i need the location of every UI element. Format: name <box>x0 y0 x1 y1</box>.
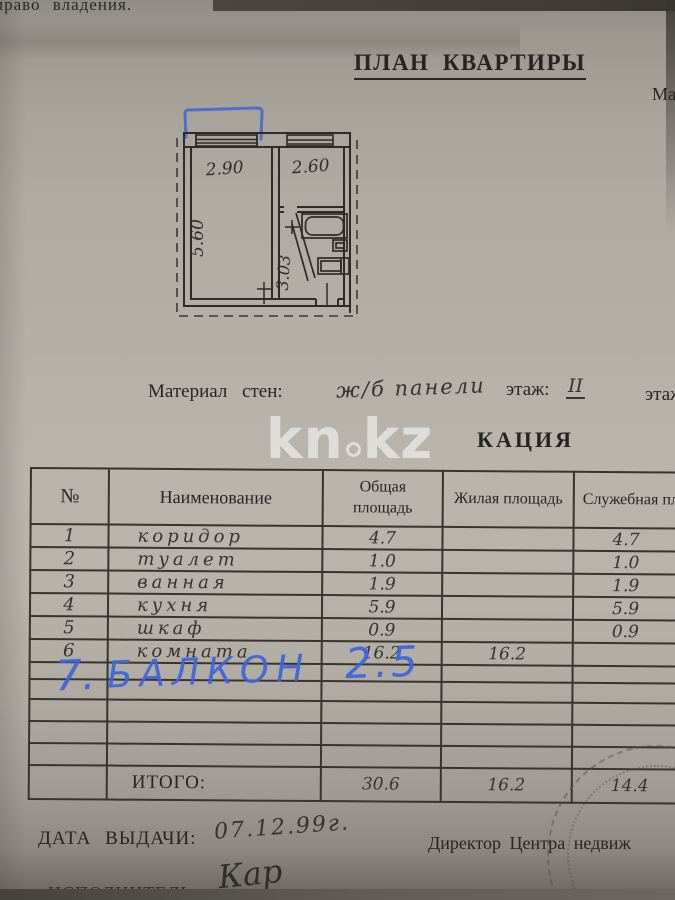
windows <box>196 133 333 148</box>
material-label: Материал стен: <box>148 381 283 403</box>
cell-name: ванная <box>108 571 322 595</box>
photo-bottom-edge <box>0 889 675 900</box>
bath-fixtures <box>302 214 349 274</box>
dim-room-width: 2.90 <box>204 158 244 181</box>
cell-total: 1.0 <box>322 549 442 573</box>
cell-service <box>573 643 675 667</box>
floor-label: этаж: <box>506 379 550 401</box>
issue-date-value-handwritten: 07.12.99г. <box>213 810 351 844</box>
cell-living <box>442 573 573 597</box>
cell-service: 4.7 <box>573 528 675 552</box>
col-header-living-area: Жилая площадь <box>443 471 574 528</box>
cell-living <box>442 596 573 620</box>
living-area-value: 16.2 <box>441 768 572 803</box>
total-area-value: 30.6 <box>321 767 441 802</box>
explication-table: № Наименование Общая площадь Жилая площа… <box>28 467 675 805</box>
balcony-number: 7. <box>54 650 96 700</box>
scanned-apartment-plan-document: право владения. ПЛАН КВАРТИРЫ Ма <box>0 0 675 900</box>
col-header-service-area: Служебная площадь <box>574 472 675 529</box>
photo-right-edge <box>666 0 675 235</box>
page-title: ПЛАН КВАРТИРЫ <box>340 50 600 80</box>
cell-num: 1 <box>30 524 108 548</box>
cell-total: 5.9 <box>322 595 442 619</box>
kn-kz-watermark: knkz <box>266 412 433 467</box>
dim-inner-height: 3.03 <box>273 254 294 291</box>
floor-plan-drawing: 2.90 2.60 5.60 3.03 <box>163 98 373 333</box>
explication-table-wrap: № Наименование Общая площадь Жилая площа… <box>28 467 675 805</box>
total-label: ИТОГО: <box>107 766 321 801</box>
cell-num: 5 <box>30 616 108 640</box>
cell-name: шкаф <box>108 617 322 641</box>
col-header-num: № <box>31 468 109 525</box>
cell-total: 4.7 <box>322 526 442 550</box>
issue-date-label: ДАТА ВЫДАЧИ: <box>38 828 197 850</box>
col-header-name: Наименование <box>109 469 323 526</box>
cell-service: 5.9 <box>573 597 675 621</box>
table-header-row: № Наименование Общая площадь Жилая площа… <box>31 468 675 529</box>
floor-label-right: этаж <box>645 384 675 406</box>
material-value-handwritten: ж/б панели <box>336 373 486 402</box>
cell-name: коридор <box>108 525 322 549</box>
cell-living <box>442 527 573 551</box>
cell-service: 1.0 <box>573 551 675 575</box>
balcony-area: 2.5 <box>344 637 421 689</box>
cell-service: 0.9 <box>573 620 675 644</box>
watermark-ring-icon <box>346 442 361 457</box>
cell-name: туалет <box>108 548 322 572</box>
explication-section-title: КАЦИЯ <box>477 427 574 453</box>
bathroom-door <box>292 213 315 281</box>
cell-name: кухня <box>108 594 322 618</box>
dim-kitchen-width: 2.60 <box>290 156 330 179</box>
cell-total: 1.9 <box>322 572 442 596</box>
cell-num: 4 <box>30 593 108 617</box>
col-header-total-area: Общая площадь <box>323 470 443 527</box>
balcony-name: БАЛКОН <box>106 646 311 696</box>
floor-value-handwritten: II <box>566 375 585 399</box>
scale-label: Ма <box>652 84 675 105</box>
photo-top-edge <box>213 0 675 11</box>
cell-service: 1.9 <box>573 574 675 598</box>
ownership-note: право владения. <box>0 0 132 15</box>
cell-num: 3 <box>30 570 108 594</box>
dim-room-height: 5.60 <box>188 219 208 257</box>
cell-living <box>442 550 573 574</box>
cell-num: 2 <box>30 547 108 571</box>
